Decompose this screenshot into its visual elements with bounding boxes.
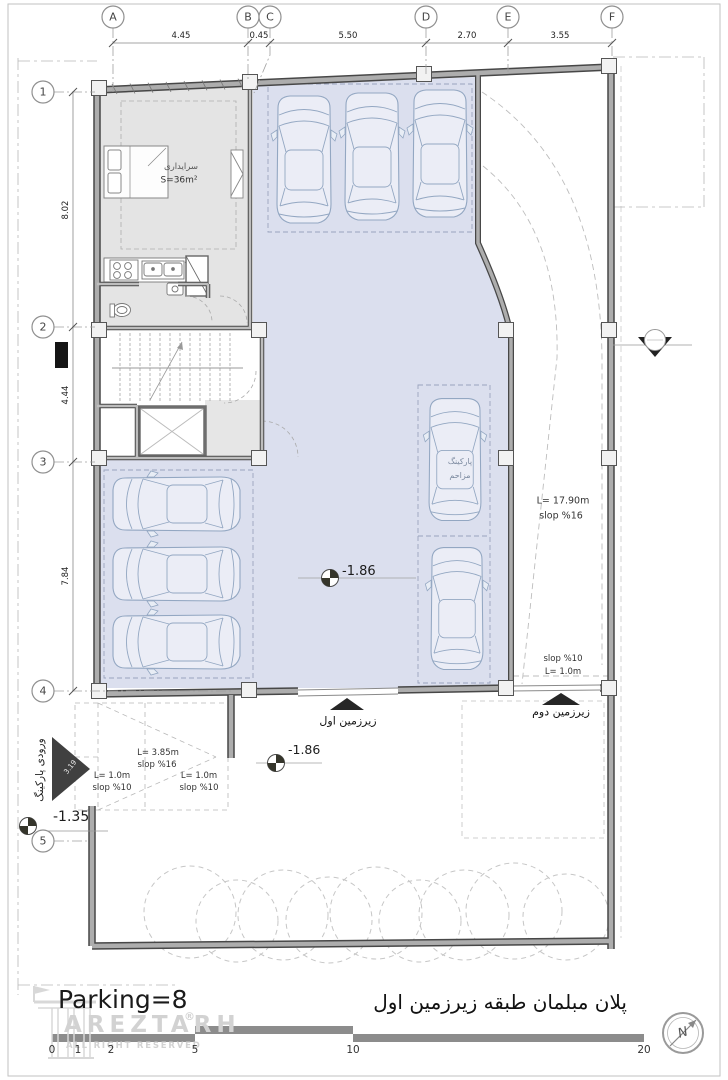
watermark-rights: ALL RIGHT RESERVED xyxy=(66,1042,202,1051)
car-top-3 xyxy=(407,90,473,217)
scale-tick-10: 10 xyxy=(346,1045,359,1056)
car-left-3 xyxy=(113,609,240,675)
ramp-main-length: L= 17.90m xyxy=(537,496,590,506)
closet xyxy=(231,150,243,198)
stall-note-line1: پارکینگ xyxy=(448,458,472,466)
watermark-reg: ® xyxy=(184,1011,195,1022)
room-area-label: S=36m² xyxy=(160,177,197,186)
basement2-label: زیرزمین دوم xyxy=(532,707,590,718)
dim-top-de: 2.70 xyxy=(458,32,477,41)
parking-count-text: Parking=8 xyxy=(58,987,188,1012)
scale-tick-5: 5 xyxy=(192,1045,199,1056)
entry-mid-slope: slop %16 xyxy=(138,761,177,770)
dim-left-12: 8.02 xyxy=(62,201,71,220)
watermark-brand: AREZTARH xyxy=(64,1014,241,1037)
dim-top-ab: 4.45 xyxy=(172,32,191,41)
ramp-exit2-slope: slop %10 xyxy=(544,655,583,664)
scale-tick-1: 1 xyxy=(75,1045,82,1056)
dim-left-34: 7.84 xyxy=(62,567,71,586)
basement1-arrow xyxy=(330,698,364,710)
level-parking-text: -1.86 xyxy=(342,565,376,578)
level-symbol-entry xyxy=(20,818,37,835)
dim-left-23: 4.44 xyxy=(62,386,71,405)
grid-row-label-1: 1 xyxy=(40,87,47,98)
dim-top-ef: 3.55 xyxy=(551,32,570,41)
room-name-label: سرایداری xyxy=(164,163,198,172)
car-left-2 xyxy=(113,541,240,607)
car-right-2 xyxy=(425,548,488,670)
grid-col-label-f: F xyxy=(609,12,615,23)
level-entry-text: -1.35 xyxy=(53,810,89,824)
grid-col-label-e: E xyxy=(505,12,512,23)
entrance-label: ورودی پارکینگ xyxy=(35,738,46,801)
scale-tick-0: 0 xyxy=(49,1045,56,1056)
yard-ramp-boundary xyxy=(462,701,604,838)
ramp-exit2-length: L= 1.0m xyxy=(545,668,581,677)
grid-row-label-3: 3 xyxy=(40,457,47,468)
dim-top-cd: 5.50 xyxy=(339,32,358,41)
level-symbol-yard xyxy=(268,755,285,772)
entry-b-slope: slop %10 xyxy=(180,784,219,793)
entry-a-length: L= 1.0m xyxy=(94,772,130,781)
elevator xyxy=(139,407,205,456)
entry-a-slope: slop %10 xyxy=(93,784,132,793)
entry-mid-length: L= 3.85m xyxy=(137,749,179,758)
bed xyxy=(104,146,168,198)
entry-b-length: L= 1.0m xyxy=(181,772,217,781)
car-left-1 xyxy=(113,471,240,537)
car-top-1 xyxy=(271,96,337,223)
floor-plan-sheet: A B C D E F 4.45 0.45 5.50 2.70 3.55 1 2… xyxy=(0,0,728,1080)
section-marker-right xyxy=(613,330,692,358)
stall-note-line2: مزاحم xyxy=(449,472,470,480)
ramp-main-slope: slop %16 xyxy=(539,511,583,521)
plan-drawing xyxy=(0,0,728,1080)
scale-tick-2: 2 xyxy=(108,1045,115,1056)
grid-col-label-b: B xyxy=(244,12,252,23)
sheet-title: پلان مبلمان طبقه زیرزمین اول xyxy=(373,992,627,1012)
grid-row-label-5: 5 xyxy=(40,836,47,847)
scale-tick-20: 20 xyxy=(637,1045,650,1056)
lobby-zone xyxy=(205,400,262,457)
dim-top-bc: 0.45 xyxy=(250,32,269,41)
grid-col-label-a: A xyxy=(109,12,117,23)
grid-row-label-4: 4 xyxy=(40,686,47,697)
grid-row-label-2: 2 xyxy=(40,322,47,333)
grid-col-label-d: D xyxy=(422,12,430,23)
stairs xyxy=(112,333,243,403)
level-symbol-parking xyxy=(322,570,339,587)
basement1-label: زیرزمین اول xyxy=(319,716,376,727)
section-marker-left xyxy=(55,342,68,368)
shaft xyxy=(186,256,208,296)
car-top-2 xyxy=(339,93,405,220)
grid-col-label-c: C xyxy=(266,12,274,23)
basement2-arrow xyxy=(542,693,580,705)
level-yard-text: -1.86 xyxy=(288,744,320,757)
